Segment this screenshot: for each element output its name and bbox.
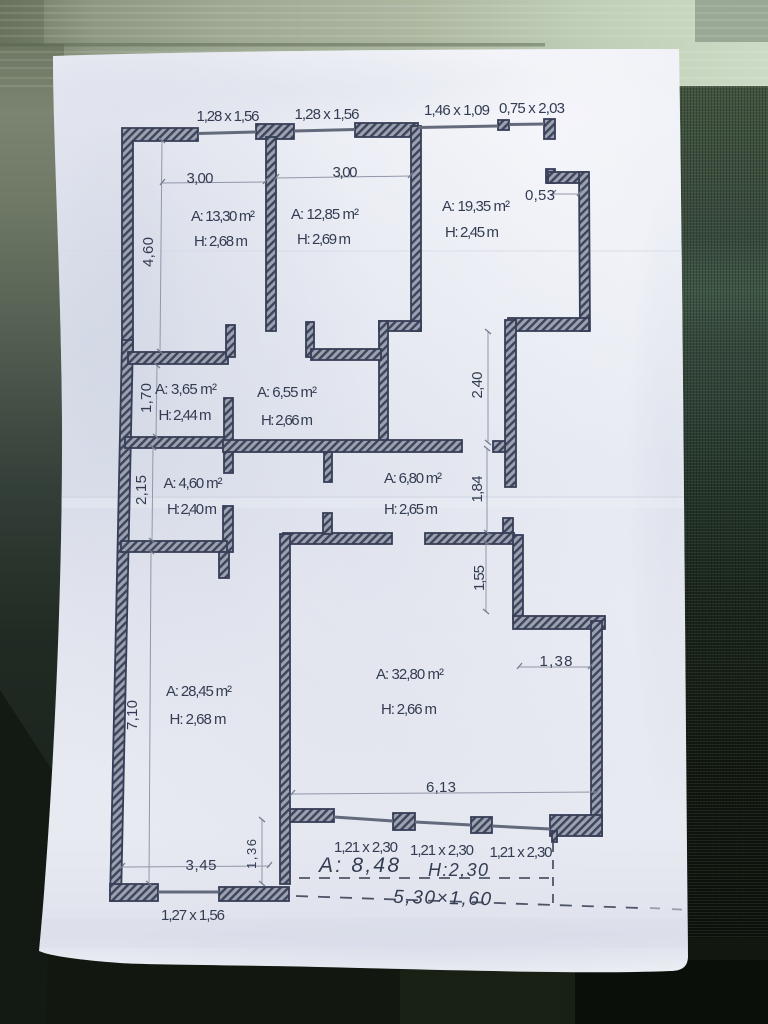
svg-text:A: 3,65 m²: A: 3,65 m² [155,381,217,398]
svg-text:A: 19,35 m²: A: 19,35 m² [442,198,510,215]
svg-text:2,40: 2,40 [469,372,486,399]
svg-text:1,28 x 1,56: 1,28 x 1,56 [197,108,260,125]
svg-text:5,30×1,60: 5,30×1,60 [393,887,492,911]
svg-text:3,45: 3,45 [186,857,217,874]
svg-text:6,13: 6,13 [426,779,456,796]
svg-text:1,27 x 1,56: 1,27 x 1,56 [161,907,225,924]
svg-text:H: 2,45 m: H: 2,45 m [445,224,499,241]
svg-text:1,46 x 1,09: 1,46 x 1,09 [424,102,490,119]
svg-text:H: 2,65 m: H: 2,65 m [384,501,438,518]
svg-text:1,36: 1,36 [244,839,259,869]
svg-text:3,00: 3,00 [333,164,358,181]
svg-text:7,10: 7,10 [124,700,141,730]
svg-text:A: 12,85 m²: A: 12,85 m² [291,206,359,223]
svg-text:1,38: 1,38 [540,653,573,670]
svg-text:1,28 x 1,56: 1,28 x 1,56 [295,106,360,123]
svg-text:2,15: 2,15 [133,475,150,505]
svg-text:H: 2,66 m: H: 2,66 m [381,701,437,718]
svg-text:1,55: 1,55 [471,565,488,591]
svg-text:H: 2,40 m: H: 2,40 m [167,501,217,518]
svg-text:H:2,30: H:2,30 [428,860,488,880]
svg-text:A: 6,80 m²: A: 6,80 m² [384,470,442,487]
svg-text:A: 28,45 m²: A: 28,45 m² [166,683,232,700]
svg-text:1,70: 1,70 [138,383,155,413]
svg-text:A: 6,55 m²: A: 6,55 m² [257,384,317,401]
svg-text:4,60: 4,60 [140,237,157,267]
svg-text:H: 2,44 m: H: 2,44 m [159,407,212,424]
svg-text:0,75 x 2,03: 0,75 x 2,03 [499,100,565,117]
svg-text:0,53: 0,53 [525,187,555,204]
svg-text:A: 4,60 m²: A: 4,60 m² [164,475,223,492]
svg-text:A: 13,30 m²: A: 13,30 m² [191,208,255,225]
svg-text:H: 2,66 m: H: 2,66 m [261,412,313,429]
svg-text:1,84: 1,84 [469,476,486,503]
svg-text:H: 2,69 m: H: 2,69 m [297,231,351,248]
svg-text:1,21 x 2,30: 1,21 x 2,30 [410,842,474,859]
svg-text:A: 8,48: A: 8,48 [317,854,399,877]
svg-text:H: 2,68 m: H: 2,68 m [170,711,227,728]
svg-text:A: 32,80 m²: A: 32,80 m² [376,666,444,683]
svg-text:3,00: 3,00 [187,170,214,187]
svg-text:1,21 x 2,30: 1,21 x 2,30 [490,844,553,861]
svg-text:H: 2,68 m: H: 2,68 m [194,233,248,250]
